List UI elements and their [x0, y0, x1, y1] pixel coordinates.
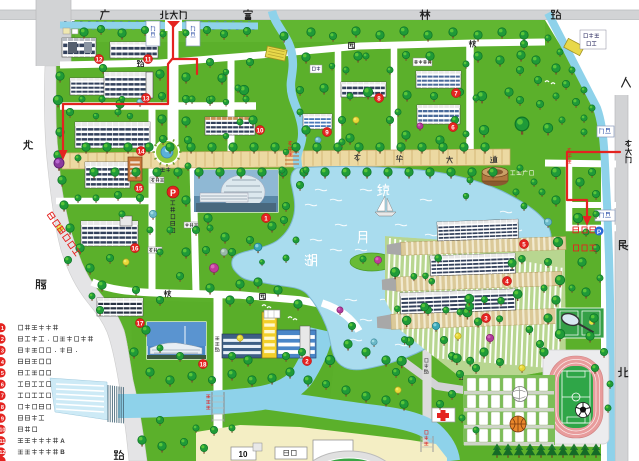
- svg-text:18: 18: [200, 361, 207, 368]
- svg-text:A: A: [60, 438, 65, 445]
- svg-text:7: 7: [454, 90, 458, 97]
- svg-text:16: 16: [132, 245, 139, 252]
- svg-text:12: 12: [96, 56, 103, 63]
- svg-text:11: 11: [0, 439, 5, 445]
- svg-text:3: 3: [484, 315, 488, 322]
- svg-text:5: 5: [522, 241, 526, 248]
- svg-text:4: 4: [505, 278, 509, 285]
- svg-text:9: 9: [1, 416, 4, 422]
- svg-text:8: 8: [1, 405, 4, 411]
- svg-text:1: 1: [264, 215, 268, 222]
- svg-text:3: 3: [1, 349, 4, 355]
- svg-text:13: 13: [143, 95, 150, 102]
- svg-text:P: P: [597, 229, 602, 236]
- svg-text:5: 5: [1, 371, 4, 377]
- svg-text:1: 1: [1, 326, 4, 332]
- svg-text:2: 2: [305, 358, 309, 365]
- svg-text:10: 10: [239, 450, 248, 459]
- svg-text:2: 2: [1, 337, 4, 343]
- svg-text:15: 15: [136, 185, 143, 192]
- svg-text:P: P: [170, 188, 176, 198]
- svg-text:11: 11: [145, 56, 152, 63]
- svg-text:17: 17: [137, 320, 144, 327]
- svg-text:6: 6: [451, 124, 455, 131]
- svg-text:7: 7: [1, 394, 4, 400]
- svg-text:10: 10: [0, 428, 5, 434]
- svg-text:12: 12: [0, 450, 5, 456]
- svg-text:6: 6: [1, 382, 4, 388]
- svg-text:10: 10: [257, 127, 264, 134]
- svg-text:14: 14: [138, 148, 145, 155]
- svg-text:9: 9: [325, 129, 329, 136]
- svg-text:B: B: [60, 449, 65, 456]
- svg-text:8: 8: [377, 95, 381, 102]
